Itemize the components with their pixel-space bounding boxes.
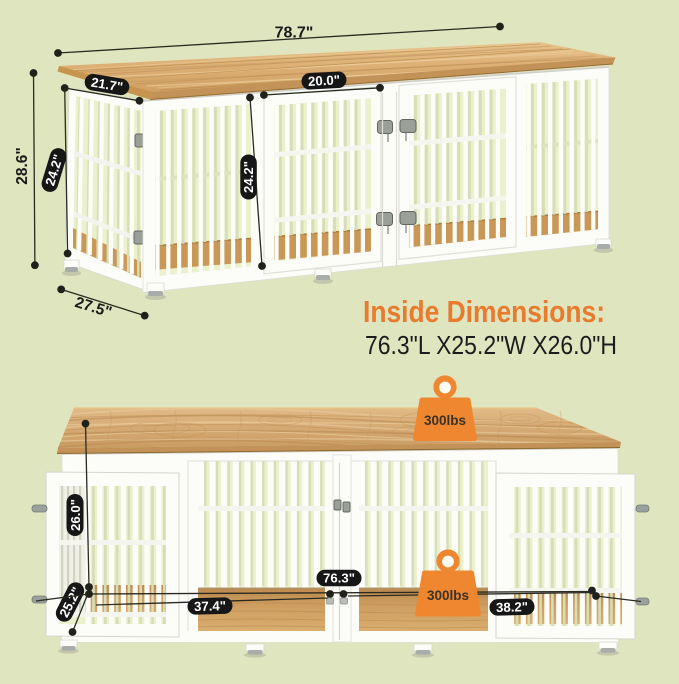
svg-text:37.4": 37.4" — [194, 598, 226, 614]
svg-text:20.0": 20.0" — [308, 72, 341, 89]
svg-text:300lbs: 300lbs — [424, 413, 466, 428]
svg-text:24.2": 24.2" — [241, 161, 256, 193]
svg-text:28.6": 28.6" — [14, 147, 31, 185]
svg-text:26.0": 26.0" — [68, 499, 83, 531]
svg-text:76.3": 76.3" — [323, 571, 355, 586]
svg-text:300lbs: 300lbs — [427, 588, 469, 603]
svg-text:78.7": 78.7" — [275, 25, 314, 42]
svg-text:38.2": 38.2" — [496, 599, 528, 615]
svg-text:76.3"L X25.2"W X26.0"H: 76.3"L X25.2"W X26.0"H — [365, 330, 617, 360]
svg-text:Inside Dimensions:: Inside Dimensions: — [363, 294, 605, 329]
